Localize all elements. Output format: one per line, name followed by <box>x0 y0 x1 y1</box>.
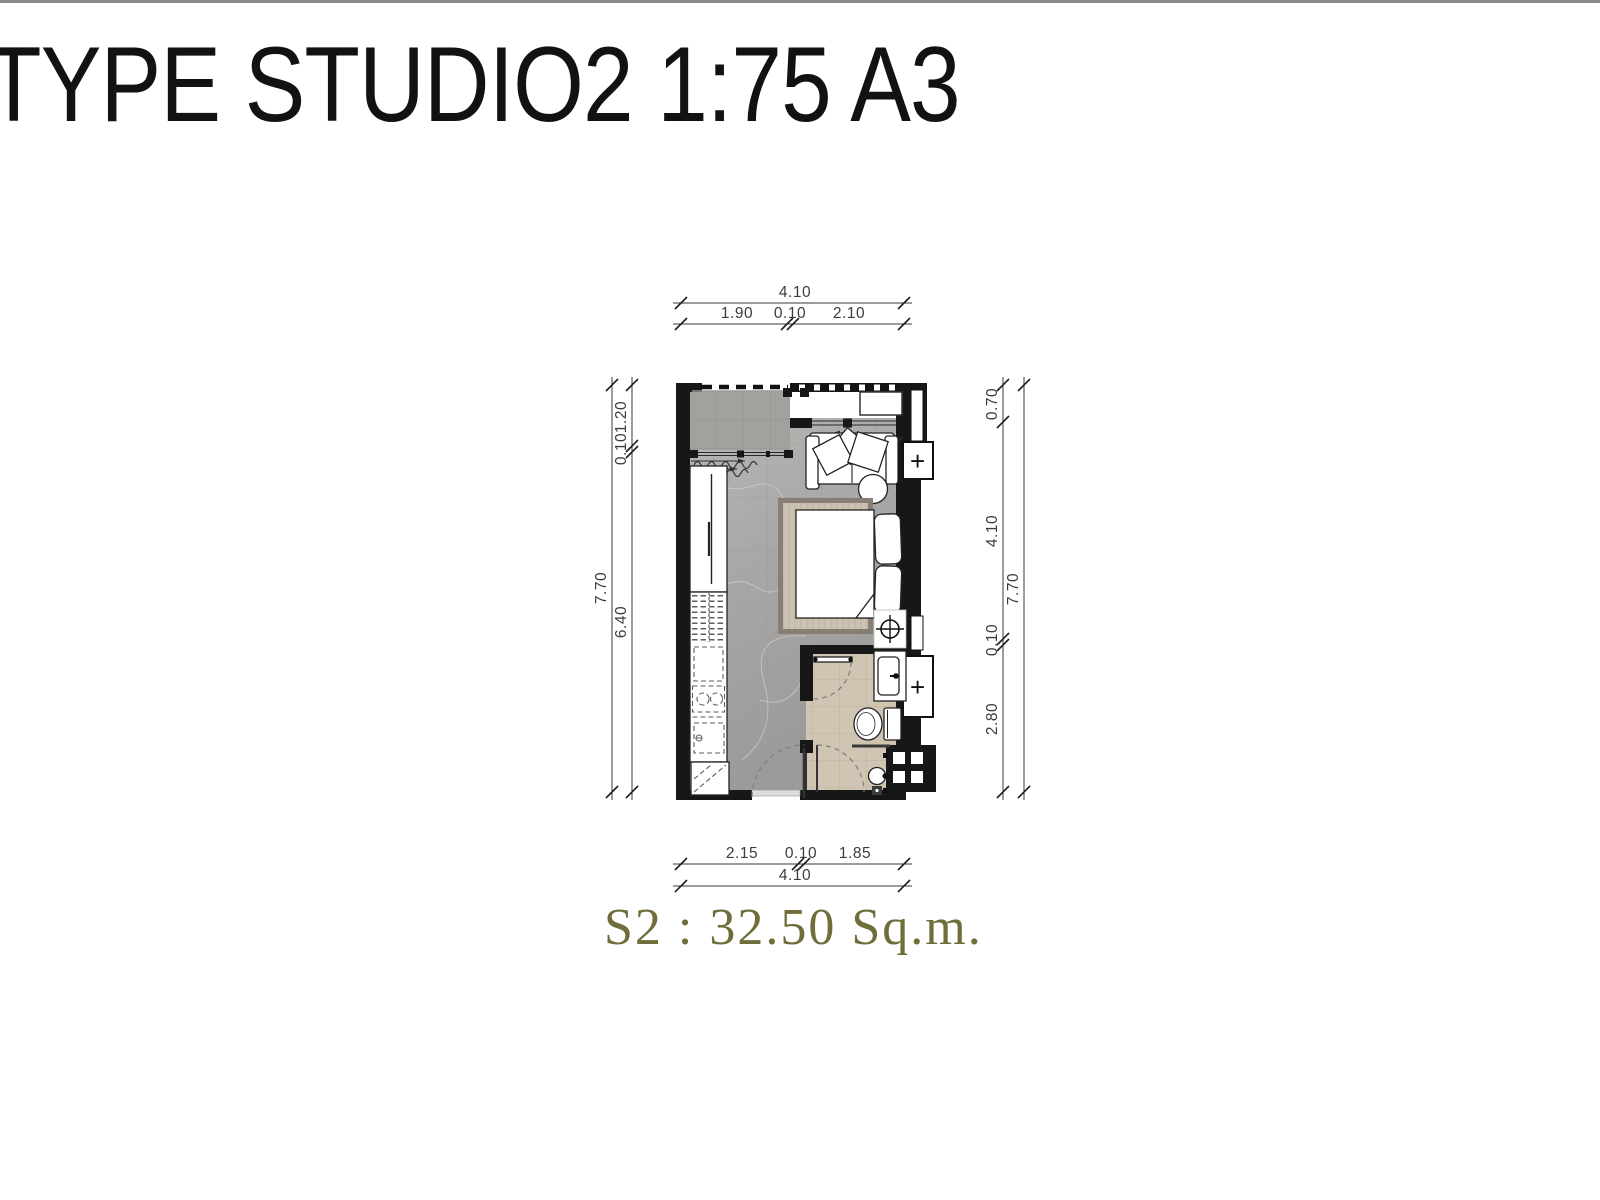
dim-bottom-seg2: 0.10 <box>785 845 817 862</box>
entry-threshold <box>752 790 800 796</box>
washer-space <box>691 762 729 795</box>
kitchen-counter <box>690 592 729 795</box>
bed-pillow <box>874 514 902 565</box>
wardrobe <box>690 466 727 592</box>
dim-bottom-seg1: 2.15 <box>726 845 758 862</box>
bed-pillow <box>874 566 902 614</box>
wall-stub-2 <box>800 388 809 397</box>
toilet <box>854 708 901 740</box>
bed <box>796 510 874 618</box>
dim-left-seg2: 0.10 <box>613 433 630 465</box>
plus-symbol: + <box>910 672 925 702</box>
dimension-top: 4.10 1.90 0.10 2.10 <box>673 284 912 330</box>
dim-left-seg1: 1.20 <box>613 401 630 433</box>
shaft-slot-mid <box>911 616 923 650</box>
dimension-right: 0.70 4.10 0.10 2.80 7.70 <box>984 377 1030 800</box>
bathroom-left-wall-upper <box>800 645 813 701</box>
dim-right-seg2: 4.10 <box>984 515 1001 547</box>
dim-top-total: 4.10 <box>779 284 811 301</box>
dim-bottom-seg3: 1.85 <box>839 845 871 862</box>
floor-plan-svg: + + <box>0 0 1600 1200</box>
dim-top-seg3: 2.10 <box>833 305 865 322</box>
toilet-tank <box>884 708 901 740</box>
dim-right-total: 7.70 <box>1005 573 1022 605</box>
dimension-left: 7.70 1.20 0.10 6.40 <box>593 377 638 800</box>
dim-right-seg4: 2.80 <box>984 703 1001 735</box>
pipe-shaft <box>886 745 936 792</box>
bathroom-left-wall-nib <box>800 740 813 753</box>
electrical-panel-top: + <box>903 442 933 479</box>
balcony-floor-tiles <box>690 391 790 450</box>
left-wall <box>676 383 690 800</box>
electrical-panel-bottom: + <box>903 656 933 717</box>
vanity-sink <box>874 651 906 701</box>
floor-drain-symbol <box>874 610 906 648</box>
dimension-bottom: 2.15 0.10 1.85 4.10 <box>673 845 912 892</box>
dim-left-total: 7.70 <box>593 572 610 604</box>
shaft-slot-top <box>911 390 923 441</box>
dim-bottom-total: 4.10 <box>779 867 811 884</box>
ac-unit <box>860 392 902 415</box>
dim-right-seg3: 0.10 <box>984 624 1001 656</box>
plus-symbol: + <box>910 446 925 476</box>
dim-top-seg1: 1.90 <box>721 305 753 322</box>
kitchen-shelves <box>691 593 726 642</box>
dim-left-seg3: 6.40 <box>613 606 630 638</box>
wall-stub-1 <box>783 388 792 397</box>
dim-top-seg2: 0.10 <box>774 305 806 322</box>
area-label: S2 : 32.50 Sq.m. <box>604 898 983 957</box>
page: TYPE STUDIO2 1:75 A3 <box>0 0 1600 1200</box>
sofa-arm-left <box>806 436 819 489</box>
dim-right-seg1: 0.70 <box>984 388 1001 420</box>
